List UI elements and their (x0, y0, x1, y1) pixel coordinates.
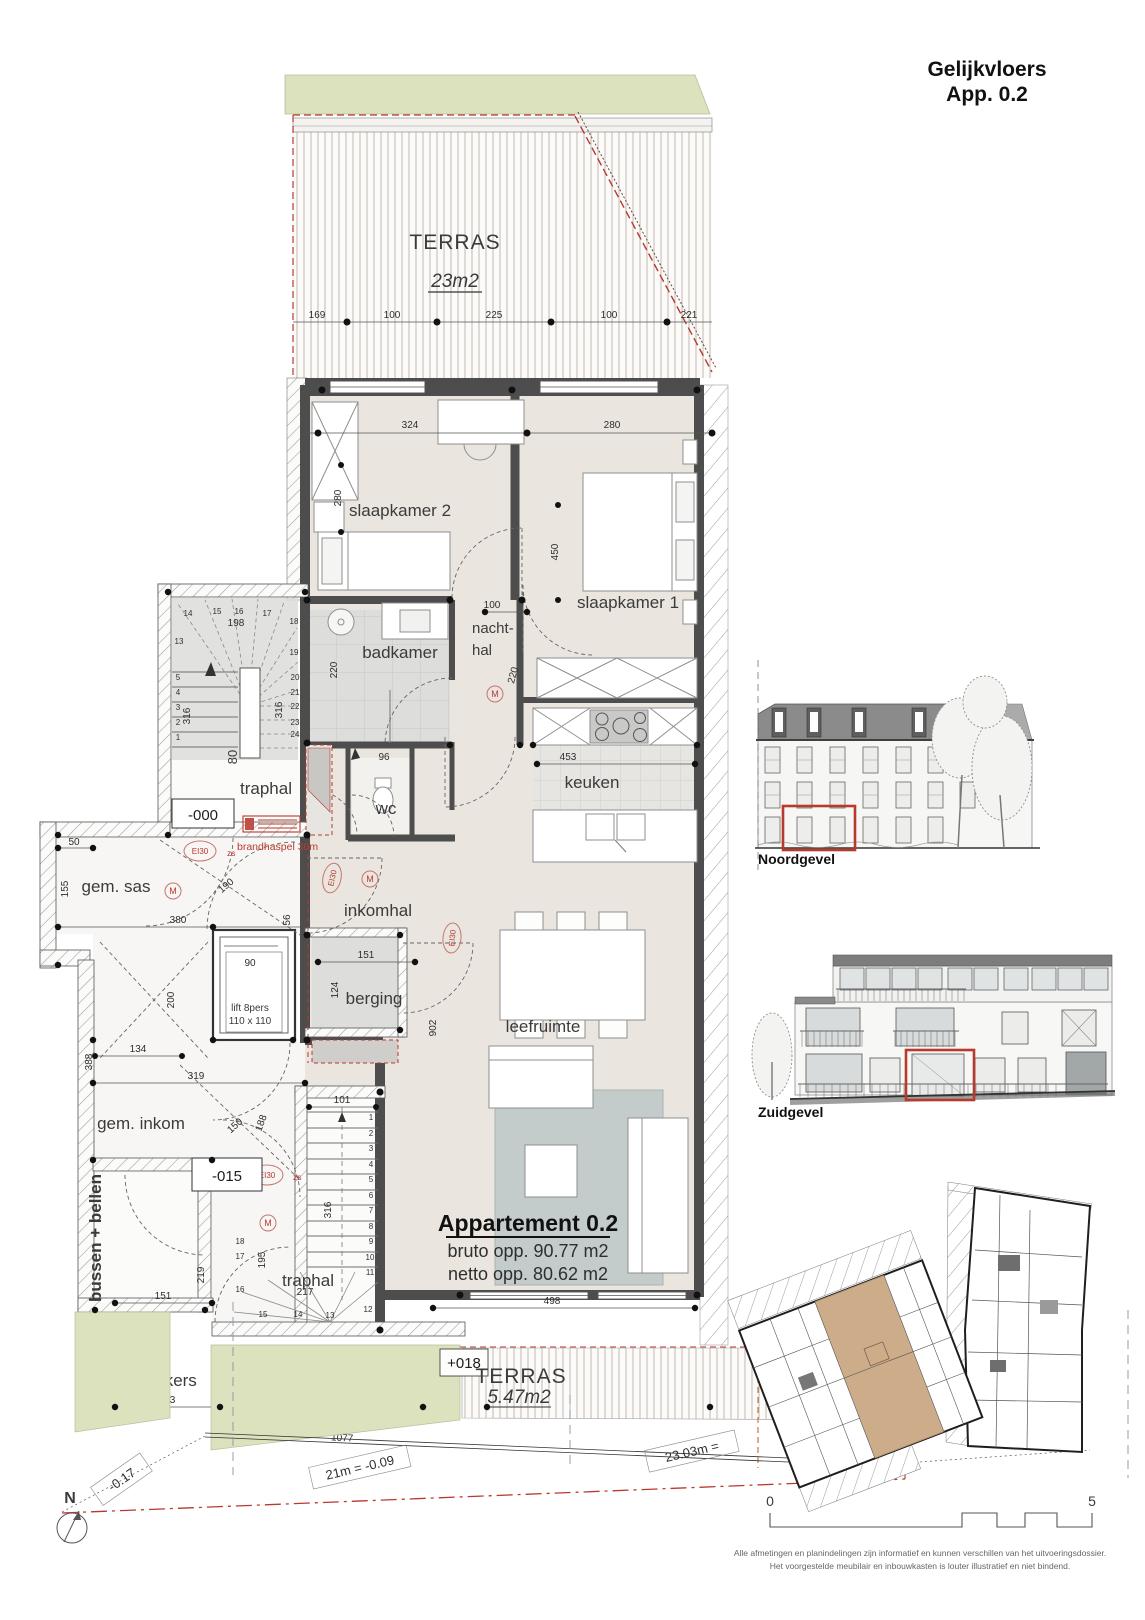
svg-text:14: 14 (294, 1310, 303, 1319)
svg-text:50: 50 (68, 837, 80, 848)
svg-text:M: M (366, 874, 374, 884)
svg-text:3: 3 (176, 703, 181, 712)
svg-text:124: 124 (330, 981, 341, 998)
label-gem-sas: gem. sas (82, 877, 151, 896)
boundary-b1: -0.17 (105, 1465, 138, 1494)
svg-text:2: 2 (369, 1129, 374, 1138)
plan-canvas: Gelijkvloers App. 0.2 TERRAS 23m2 169 10… (0, 0, 1145, 1620)
site-key-plan (728, 1182, 1092, 1512)
svg-text:6: 6 (369, 1191, 374, 1200)
ei30-label-4: EI30 (447, 929, 457, 947)
svg-text:7: 7 (369, 1206, 374, 1215)
svg-text:15: 15 (259, 1310, 268, 1319)
svg-text:8: 8 (369, 1222, 374, 1231)
svg-text:902: 902 (428, 1019, 439, 1036)
title-line1: Gelijkvloers (927, 58, 1046, 81)
svg-text:380: 380 (170, 915, 187, 926)
label-slaapkamer1: slaapkamer 1 (577, 593, 679, 612)
svg-text:219: 219 (196, 1266, 207, 1283)
svg-text:316: 316 (182, 707, 193, 724)
label-nachthal-2: hal (472, 642, 492, 659)
svg-text:M: M (264, 1218, 272, 1228)
label-keuken: keuken (565, 773, 620, 792)
svg-text:280: 280 (333, 489, 344, 506)
svg-text:5: 5 (176, 673, 181, 682)
title-line2: App. 0.2 (946, 83, 1028, 106)
svg-text:1: 1 (369, 1113, 374, 1122)
svg-text:198: 198 (228, 618, 245, 629)
label-gem-inkom: gem. inkom (97, 1114, 185, 1133)
dim-terras-3: 225 (486, 310, 503, 321)
terras-top-area: 23m2 (430, 271, 479, 292)
brandhaspel-label: brandhaspel 30m (237, 841, 318, 853)
svg-text:13: 13 (326, 1311, 335, 1320)
svg-text:195: 195 (257, 1251, 268, 1268)
north-label: N (64, 1490, 76, 1507)
svg-text:5: 5 (369, 1175, 374, 1184)
svg-text:155: 155 (60, 880, 71, 897)
apartment-info: Appartement 0.2 bruto opp. 90.77 m2 nett… (438, 1210, 618, 1284)
label-berging: berging (346, 989, 403, 1008)
svg-text:1: 1 (176, 733, 181, 742)
svg-text:15: 15 (213, 607, 222, 616)
scale-end: 5 (1088, 1493, 1096, 1509)
label-leefruimte: leefruimte (506, 1017, 581, 1036)
dim-terras-5: 221 (681, 310, 698, 321)
svg-text:18: 18 (236, 1237, 245, 1246)
terras-bottom-label: TERRAS (475, 1365, 566, 1388)
zuidgevel-label: Zuidgevel (758, 1104, 823, 1120)
noordgevel-label: Noordgevel (758, 851, 835, 867)
label-wc: wc (375, 799, 397, 818)
svg-text:16: 16 (235, 607, 244, 616)
disclaimer: Alle afmetingen en planindelingen zijn i… (734, 1548, 1106, 1571)
svg-text:17: 17 (263, 609, 272, 618)
svg-text:316: 316 (274, 701, 285, 718)
svg-text:316: 316 (323, 1201, 334, 1218)
svg-text:11: 11 (366, 1268, 375, 1277)
label-slaapkamer2: slaapkamer 2 (349, 501, 451, 520)
apartment-bruto: bruto opp. 90.77 m2 (447, 1241, 608, 1261)
svg-text:200: 200 (166, 991, 177, 1008)
svg-text:16: 16 (236, 1285, 245, 1294)
scale-start: 0 (766, 1493, 774, 1509)
svg-text:19: 19 (290, 648, 299, 657)
svg-text:22: 22 (291, 702, 300, 711)
svg-text:453: 453 (560, 752, 577, 763)
sheet-title: Gelijkvloers App. 0.2 (927, 58, 1046, 106)
dim-terras-4: 100 (601, 310, 618, 321)
terras-top-label: TERRAS (409, 231, 500, 254)
terras-bottom-area: 5.47m2 (487, 1387, 551, 1408)
label-nachthal-1: nacht- (472, 620, 514, 637)
svg-text:217: 217 (297, 1287, 314, 1298)
svg-text:20: 20 (291, 673, 300, 682)
label-lift-2: 110 x 110 (229, 1016, 272, 1027)
floorplan-sheet: Gelijkvloers App. 0.2 TERRAS 23m2 169 10… (0, 0, 1145, 1620)
svg-text:101: 101 (334, 1095, 351, 1106)
label-lift-1: lift 8pers (231, 1003, 269, 1014)
dim-terras-1: 169 (309, 310, 326, 321)
svg-text:4: 4 (176, 688, 181, 697)
disclaimer-line1: Alle afmetingen en planindelingen zijn i… (734, 1548, 1106, 1558)
svg-text:4: 4 (369, 1160, 374, 1169)
elevation-zuidgevel: Zuidgevel (752, 955, 1145, 1120)
north-arrow: N (57, 1490, 87, 1543)
svg-text:14: 14 (184, 609, 193, 618)
svg-text:96: 96 (378, 752, 390, 763)
label-bussen-bellen: bussen + bellen (86, 1174, 105, 1302)
svg-text:151: 151 (358, 950, 375, 961)
label-inkomhal: inkomhal (344, 901, 412, 920)
svg-text:134: 134 (130, 1044, 147, 1055)
dim-terras-2: 100 (384, 310, 401, 321)
svg-text:56: 56 (282, 914, 293, 926)
svg-text:21: 21 (291, 688, 300, 697)
svg-text:23: 23 (291, 718, 300, 727)
svg-text:13: 13 (175, 637, 184, 646)
svg-text:24: 24 (291, 730, 300, 739)
apartment-netto: netto opp. 80.62 m2 (448, 1264, 608, 1284)
svg-text:18: 18 (290, 617, 299, 626)
svg-text:324: 324 (402, 420, 419, 431)
boundary-b3: 23.03m = (664, 1438, 721, 1465)
svg-text:10: 10 (366, 1253, 375, 1262)
svg-text:280: 280 (604, 420, 621, 431)
label-level-015: -015 (212, 1168, 242, 1185)
ei30-label-1: EI30 (192, 847, 209, 856)
zs-label-1: zs (227, 848, 236, 858)
svg-text:9: 9 (369, 1237, 374, 1246)
disclaimer-line2: Het voorgestelde meubilair en inbouwkast… (770, 1561, 1071, 1571)
svg-text:3: 3 (369, 1144, 374, 1153)
svg-text:2: 2 (176, 718, 181, 727)
svg-text:151: 151 (155, 1291, 172, 1302)
svg-text:17: 17 (236, 1252, 245, 1261)
svg-text:90: 90 (244, 958, 256, 969)
svg-text:M: M (491, 689, 499, 699)
svg-text:220: 220 (329, 661, 340, 678)
svg-text:80: 80 (225, 750, 240, 764)
elevation-noordgevel: Noordgevel (755, 660, 1040, 870)
svg-text:M: M (169, 886, 177, 896)
svg-text:450: 450 (550, 543, 561, 560)
svg-text:12: 12 (364, 1305, 373, 1314)
zs-label-2: zs (293, 1172, 302, 1182)
apartment-name: Appartement 0.2 (438, 1210, 618, 1236)
label-badkamer: badkamer (362, 643, 438, 662)
label-traphal-top: traphal (240, 779, 292, 798)
svg-text:319: 319 (188, 1071, 205, 1082)
svg-text:498: 498 (544, 1296, 561, 1307)
label-level-000: -000 (188, 807, 218, 824)
